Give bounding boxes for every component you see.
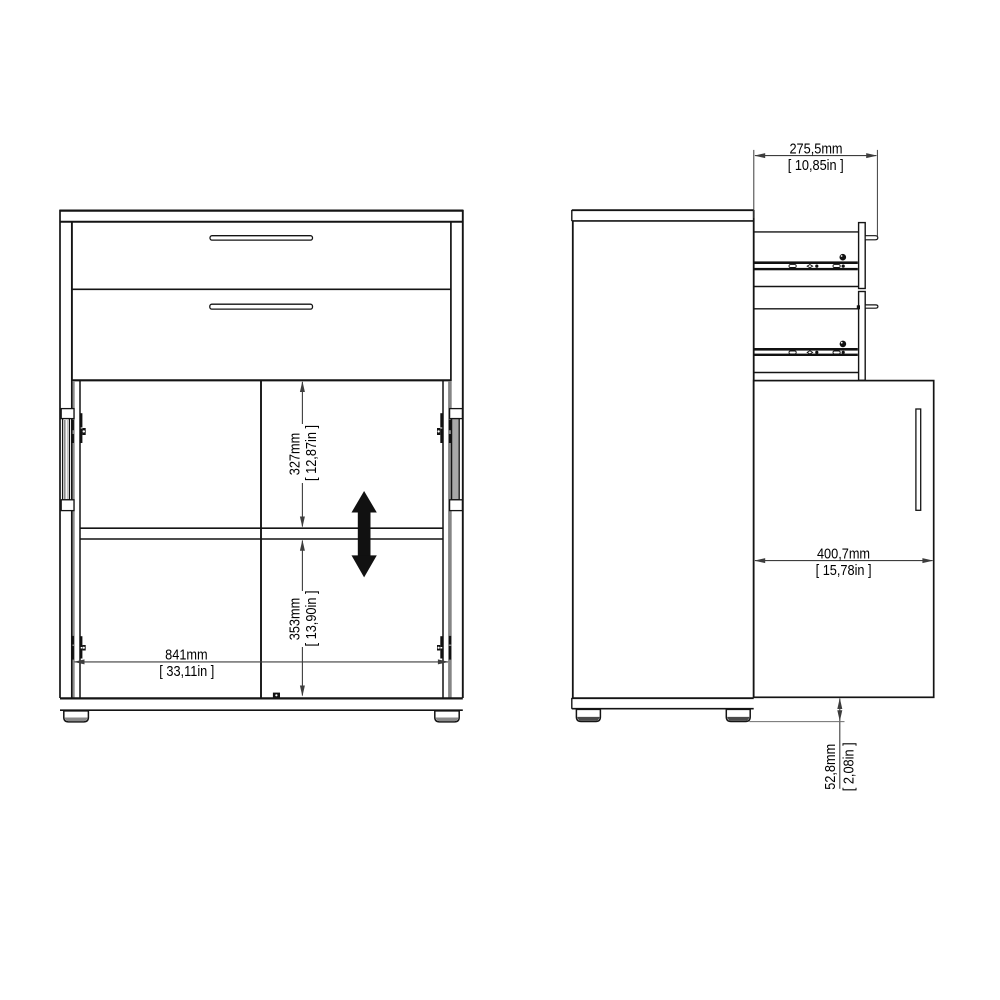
svg-text:400,7mm: 400,7mm bbox=[817, 545, 870, 562]
svg-text:[ 12,87in ]: [ 12,87in ] bbox=[302, 425, 319, 481]
svg-text:[ 13,90in ]: [ 13,90in ] bbox=[302, 591, 319, 647]
svg-text:[ 10,85in ]: [ 10,85in ] bbox=[788, 156, 844, 173]
svg-text:327mm: 327mm bbox=[285, 433, 302, 475]
svg-text:[ 2,08in ]: [ 2,08in ] bbox=[839, 742, 856, 791]
svg-text:[ 33,11in ]: [ 33,11in ] bbox=[159, 662, 214, 679]
svg-text:275,5mm: 275,5mm bbox=[789, 140, 842, 157]
svg-text:841mm: 841mm bbox=[165, 646, 207, 663]
svg-text:353mm: 353mm bbox=[285, 598, 302, 640]
svg-text:[ 15,78in ]: [ 15,78in ] bbox=[816, 561, 872, 578]
svg-text:52,8mm: 52,8mm bbox=[821, 744, 838, 790]
